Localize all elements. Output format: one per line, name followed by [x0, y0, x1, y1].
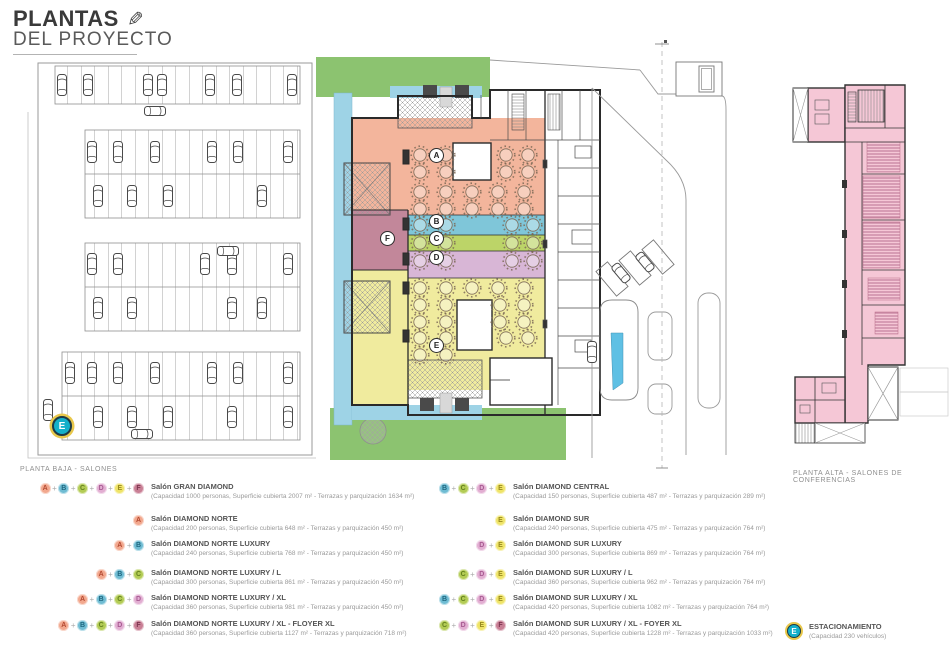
zone-badge-c: C — [114, 594, 125, 605]
zone-badge-f: F — [133, 620, 144, 631]
legend-badges: E — [430, 515, 506, 526]
legend-details: (Capacidad 360 personas, Superficie cubi… — [151, 604, 403, 611]
plus-sign: + — [127, 540, 132, 551]
zone-badge-a: A — [77, 594, 88, 605]
legend-item-diamond-norte: A Salón DIAMOND NORTE (Capacidad 200 per… — [22, 515, 414, 532]
legend-item-diamond-sur-luxury-l: C+D+E Salón DIAMOND SUR LUXURY / L (Capa… — [430, 569, 773, 586]
page-subtitle: DEL PROYECTO — [13, 29, 173, 51]
pencil-icon: ✎ — [127, 7, 144, 32]
plus-sign: + — [470, 594, 475, 605]
zone-badge-c: C — [439, 620, 450, 631]
legend-item-diamond-norte-luxury: A+B Salón DIAMOND NORTE LUXURY (Capacida… — [22, 540, 414, 557]
zone-badge-a: A — [96, 569, 107, 580]
legend-badges: B+C+D+E — [430, 483, 506, 494]
plus-sign: + — [108, 594, 113, 605]
legend-item-diamond-sur-luxury-xl-foyer: C+D+E+F Salón DIAMOND SUR LUXURY / XL - … — [430, 620, 773, 637]
legend-details: (Capacidad 360 personas, Superficie cubi… — [513, 579, 765, 586]
zone-badge-e: E — [495, 569, 506, 580]
plus-sign: + — [489, 483, 494, 494]
zone-badge-f: F — [133, 483, 144, 494]
zone-badge-a: A — [114, 540, 125, 551]
legend-badges: A+B+C+D+E+F — [22, 483, 144, 494]
zone-badge-c: C — [458, 483, 469, 494]
zone-badge-a: A — [40, 483, 51, 494]
plus-sign: + — [89, 483, 94, 494]
zone-badge-c: C — [77, 483, 88, 494]
legend-title: Salón DIAMOND SUR LUXURY — [513, 540, 765, 549]
zone-badge-c: C — [458, 569, 469, 580]
legend-title: Salón DIAMOND SUR LUXURY / XL — [513, 594, 769, 603]
zone-marker-d: D — [429, 250, 444, 265]
zone-badge-b: B — [439, 594, 450, 605]
legend-title: Salón DIAMOND SUR LUXURY / L — [513, 569, 765, 578]
header-divider — [13, 54, 137, 55]
zone-badge-f: F — [495, 620, 506, 631]
plus-sign: + — [127, 483, 132, 494]
zone-badge-b: B — [114, 569, 125, 580]
plus-sign: + — [71, 483, 76, 494]
legend-title: Salón DIAMOND NORTE LUXURY / L — [151, 569, 403, 578]
legend-item-diamond-norte-luxury-xl: A+B+C+D Salón DIAMOND NORTE LUXURY / XL … — [22, 594, 414, 611]
legend-details: (Capacidad 360 personas, Superficie cubi… — [151, 630, 407, 637]
legend-details: (Capacidad 200 personas, Superficie cubi… — [151, 525, 403, 532]
legend-details: (Capacidad 420 personas, Superficie cubi… — [513, 630, 773, 637]
zone-badge-b: B — [58, 483, 69, 494]
legend-badges: A+B+C+D+F — [22, 620, 144, 631]
legend-title: Salón DIAMOND SUR LUXURY / XL - FOYER XL — [513, 620, 773, 629]
plus-sign: + — [451, 483, 456, 494]
legend-details: (Capacidad 300 personas, Superficie cubi… — [151, 579, 403, 586]
plus-sign: + — [489, 620, 494, 631]
parking-badge: E — [787, 624, 801, 638]
zone-marker-b: B — [429, 214, 444, 229]
zone-badge-d: D — [476, 594, 487, 605]
zone-badge-e: E — [476, 620, 487, 631]
zone-badge-d: D — [476, 569, 487, 580]
zone-badge-d: D — [133, 594, 144, 605]
legend-title: Salón DIAMOND NORTE — [151, 515, 403, 524]
zone-badge-b: B — [96, 594, 107, 605]
plus-sign: + — [71, 620, 76, 631]
plus-sign: + — [470, 483, 475, 494]
legend-item-gran-diamond: A+B+C+D+E+F Salón GRAN DIAMOND (Capacida… — [22, 483, 414, 500]
zone-badge-b: B — [439, 483, 450, 494]
legend-right-column: B+C+D+E Salón DIAMOND CENTRAL (Capacidad… — [430, 483, 773, 646]
legend-badges: C+D+E — [430, 569, 506, 580]
parking-legend: E ESTACIONAMIENTO (Capacidad 230 vehícul… — [787, 623, 886, 640]
legend-item-diamond-norte-luxury-l: A+B+C Salón DIAMOND NORTE LUXURY / L (Ca… — [22, 569, 414, 586]
plus-sign: + — [108, 569, 113, 580]
plus-sign: + — [451, 620, 456, 631]
legend-title: Salón DIAMOND NORTE LUXURY / XL - FLOYER… — [151, 620, 407, 629]
zone-badge-d: D — [458, 620, 469, 631]
parking-details: (Capacidad 230 vehículos) — [809, 633, 886, 640]
legend-details: (Capacidad 240 personas, Superficie cubi… — [513, 525, 765, 532]
legend-details: (Capacidad 420 personas, Superficie cubi… — [513, 604, 769, 611]
zone-badge-e: E — [495, 594, 506, 605]
legend-details: (Capacidad 1000 personas, Superficie cub… — [151, 493, 414, 500]
plus-sign: + — [489, 569, 494, 580]
plus-sign: + — [489, 594, 494, 605]
zone-marker-f: F — [380, 231, 395, 246]
zone-badge-e: E — [114, 483, 125, 494]
plus-sign: + — [89, 620, 94, 631]
zone-marker-a: A — [429, 148, 444, 163]
sheet-header: PLANTAS ✎ DEL PROYECTO — [13, 6, 173, 55]
label-planta-alta: PLANTA ALTA - SALONES DE CONFERENCIAS — [793, 470, 950, 484]
parking-lot — [28, 63, 316, 458]
plus-sign: + — [108, 620, 113, 631]
plus-sign: + — [127, 620, 132, 631]
plan-sheet: PLANTAS ✎ DEL PROYECTO PLANTA BAJA - SAL… — [0, 0, 950, 658]
zone-badge-c: C — [133, 569, 144, 580]
zone-badge-c: C — [458, 594, 469, 605]
legend-title: Salón GRAN DIAMOND — [151, 483, 414, 492]
label-planta-baja: PLANTA BAJA - SALONES — [20, 466, 117, 473]
legend-title: Salón DIAMOND NORTE LUXURY — [151, 540, 403, 549]
legend-item-diamond-sur-luxury: D+E Salón DIAMOND SUR LUXURY (Capacidad … — [430, 540, 773, 557]
legend-item-diamond-norte-luxury-xl-floyer: A+B+C+D+F Salón DIAMOND NORTE LUXURY / X… — [22, 620, 414, 637]
legend-badges: A+B+C — [22, 569, 144, 580]
parking-marker: E — [52, 416, 72, 436]
legend-details: (Capacidad 150 personas, Superficie cubi… — [513, 493, 765, 500]
plus-sign: + — [470, 569, 475, 580]
legend-badges: B+C+D+E — [430, 594, 506, 605]
plus-sign: + — [108, 483, 113, 494]
plus-sign: + — [489, 540, 494, 551]
legend-badges: D+E — [430, 540, 506, 551]
zone-badge-b: B — [133, 540, 144, 551]
legend-details: (Capacidad 300 personas, Superficie cubi… — [513, 550, 765, 557]
legend-title: Salón DIAMOND NORTE LUXURY / XL — [151, 594, 403, 603]
zone-badge-a: A — [133, 515, 144, 526]
legend-title: Salón DIAMOND SUR — [513, 515, 765, 524]
zone-marker-e: E — [429, 338, 444, 353]
zone-badge-d: D — [476, 540, 487, 551]
legend-item-diamond-sur-luxury-xl: B+C+D+E Salón DIAMOND SUR LUXURY / XL (C… — [430, 594, 773, 611]
plus-sign: + — [451, 594, 456, 605]
legend-badges: C+D+E+F — [430, 620, 506, 631]
zone-badge-e: E — [495, 483, 506, 494]
legend-details: (Capacidad 240 personas, Superficie cubi… — [151, 550, 403, 557]
zone-badge-d: D — [114, 620, 125, 631]
plus-sign: + — [127, 569, 132, 580]
zone-badge-c: C — [96, 620, 107, 631]
plus-sign: + — [52, 483, 57, 494]
legend-badges: A — [22, 515, 144, 526]
zone-badge-b: B — [77, 620, 88, 631]
plus-sign: + — [127, 594, 132, 605]
zone-badge-d: D — [96, 483, 107, 494]
planta-alta-drawing — [793, 85, 948, 443]
parking-title: ESTACIONAMIENTO — [809, 623, 886, 632]
zone-marker-c: C — [429, 231, 444, 246]
plus-sign: + — [89, 594, 94, 605]
legend-left-column: A+B+C+D+E+F Salón GRAN DIAMOND (Capacida… — [22, 483, 414, 646]
legend-badges: A+B+C+D — [22, 594, 144, 605]
zone-badge-e: E — [495, 515, 506, 526]
zone-badge-a: A — [58, 620, 69, 631]
legend-title: Salón DIAMOND CENTRAL — [513, 483, 765, 492]
legend-item-diamond-sur: E Salón DIAMOND SUR (Capacidad 240 perso… — [430, 515, 773, 532]
zone-badge-e: E — [495, 540, 506, 551]
zone-badge-d: D — [476, 483, 487, 494]
legend-item-diamond-central: B+C+D+E Salón DIAMOND CENTRAL (Capacidad… — [430, 483, 773, 500]
plus-sign: + — [470, 620, 475, 631]
legend-badges: A+B — [22, 540, 144, 551]
